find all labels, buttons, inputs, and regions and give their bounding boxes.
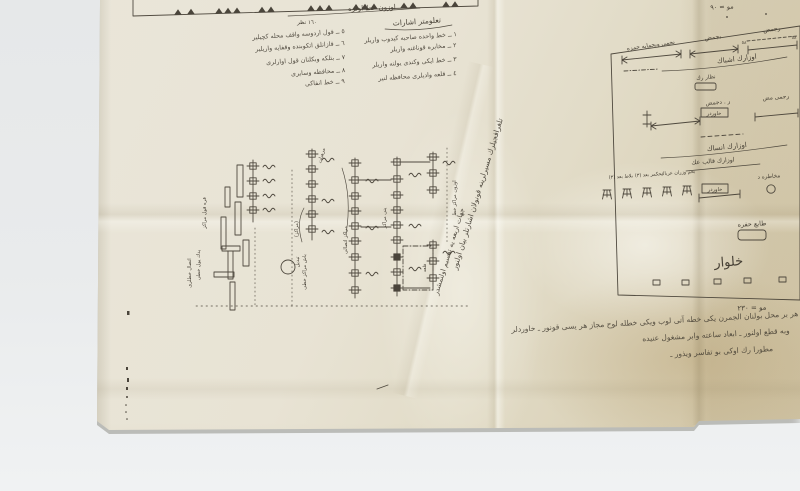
symbol-label: بلاط بعد (٣) — [609, 173, 634, 181]
right-panel: مو = ٩٠ نجمى وبحمايه حمزه بجمض رجمض ٥٨ ٥… — [603, 2, 800, 312]
symbol-label: مخاطره د — [757, 173, 780, 181]
legend-header: تعلومتر اشارات — [392, 15, 441, 27]
schematic-label: ينى مراكز — [382, 207, 388, 229]
camp-tick-label: ١٦٠ نظر — [296, 20, 317, 26]
small-label: نظار رك — [696, 74, 716, 82]
big-handwritten-word: خلوار — [713, 254, 744, 271]
symbol-label: بحم وزران عرباك — [660, 169, 695, 177]
dim-label: نجمى وبحمايه حمزه — [626, 40, 675, 53]
schematic-label: مرهبات — [317, 147, 327, 164]
camp-line — [133, 0, 478, 16]
dim-label: ر . دجمض — [705, 99, 731, 107]
boxed-label: خاوردر — [706, 111, 722, 117]
dim-number: ٥٨ — [742, 41, 747, 46]
dim-label: رجمى مض — [762, 94, 789, 102]
schematic-label: يدك يول خطى — [196, 249, 202, 280]
dim-label: رجمض — [763, 25, 781, 34]
trestle-icons — [603, 184, 776, 202]
schematic-label: قره قول مراكز — [202, 197, 208, 230]
schematic-label: باش مراكز خطى — [302, 254, 308, 290]
stamp-label: طابع حفره — [737, 219, 766, 228]
schematic-label: تبديل — [295, 256, 301, 267]
ink-dash-mark — [377, 385, 388, 389]
ink-specks — [125, 311, 129, 420]
panel-annotation: اوزارك قالب عك — [691, 156, 735, 166]
photo-scene: اوزون خط اولره ١٦٠ نظر تعلومتر اشارات — [0, 0, 800, 491]
schematic-chains — [247, 149, 455, 298]
dim-number: ٥٨ — [792, 36, 797, 41]
scale-note-top: مو = ٩٠ — [710, 2, 734, 11]
symbol-label: بحكمر بعد (٣) — [635, 171, 663, 179]
schematic-label: اتصال خطلرى — [187, 258, 193, 287]
floor-square-icons — [653, 277, 786, 285]
boxed-label: خاوردر — [707, 187, 723, 193]
panel-annotation: اوزارك اشباك — [716, 53, 757, 66]
schematic-label: (مراكز) — [294, 221, 300, 237]
schematic-label: مراكز اتصالى — [343, 226, 349, 254]
schematic-label: قلعه — [423, 264, 428, 272]
dim-label: بجمض — [704, 33, 722, 42]
schematic-bars — [214, 165, 295, 310]
camp-line-title: اوزون خط اولره — [348, 3, 396, 13]
